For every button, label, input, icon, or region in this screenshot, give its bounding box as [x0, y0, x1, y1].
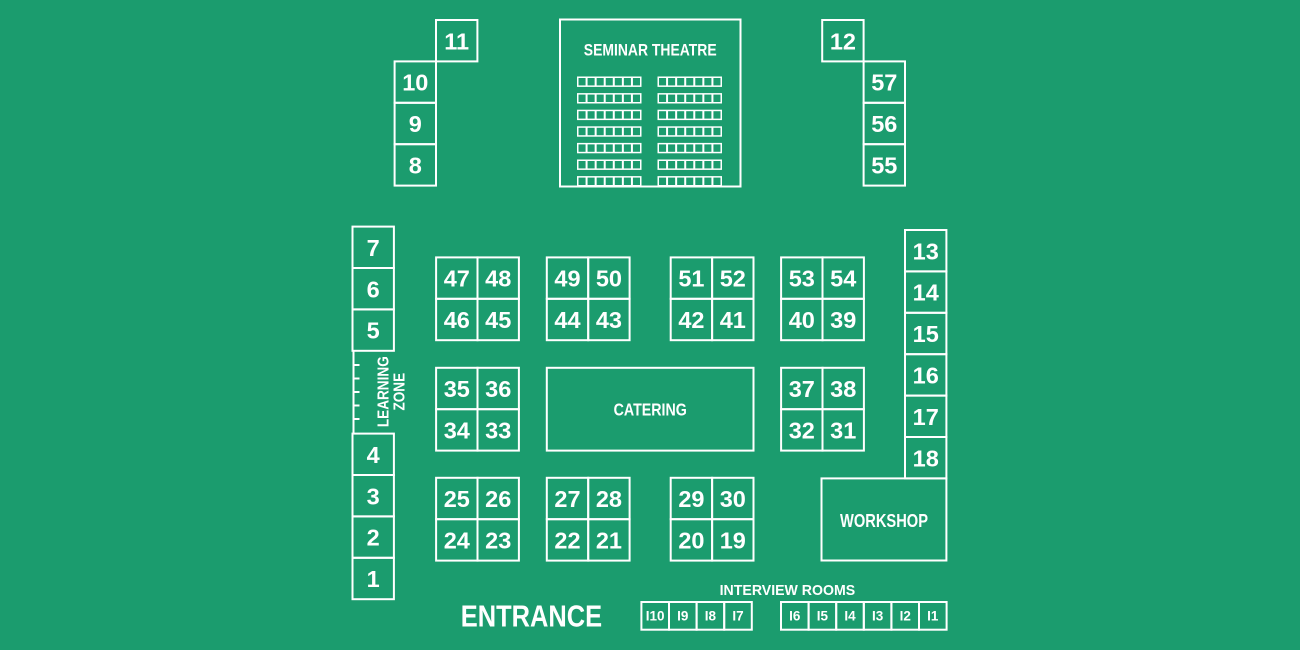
svg-text:32: 32	[789, 418, 815, 444]
svg-text:28: 28	[596, 486, 622, 512]
svg-text:I4: I4	[844, 609, 856, 624]
svg-text:I6: I6	[789, 609, 801, 624]
svg-text:26: 26	[485, 486, 511, 512]
svg-text:48: 48	[485, 266, 511, 292]
svg-text:57: 57	[871, 70, 897, 96]
svg-text:31: 31	[830, 418, 856, 444]
svg-text:INTERVIEW ROOMS: INTERVIEW ROOMS	[720, 582, 856, 598]
svg-text:49: 49	[554, 266, 580, 292]
svg-text:18: 18	[913, 445, 939, 471]
svg-text:50: 50	[596, 266, 622, 292]
svg-text:I3: I3	[872, 609, 884, 624]
svg-text:46: 46	[444, 307, 470, 333]
svg-text:1: 1	[367, 566, 380, 592]
svg-text:21: 21	[596, 528, 622, 554]
svg-text:11: 11	[444, 28, 469, 54]
svg-text:20: 20	[678, 528, 704, 554]
svg-text:33: 33	[485, 418, 511, 444]
svg-text:54: 54	[830, 266, 856, 292]
svg-text:9: 9	[409, 111, 422, 137]
svg-text:WORKSHOP: WORKSHOP	[840, 510, 928, 531]
svg-text:19: 19	[720, 528, 746, 554]
svg-text:52: 52	[720, 266, 746, 292]
svg-text:6: 6	[367, 276, 380, 302]
svg-text:39: 39	[830, 307, 856, 333]
svg-text:10: 10	[402, 70, 428, 96]
svg-text:SEMINAR THEATRE: SEMINAR THEATRE	[584, 41, 717, 60]
svg-text:42: 42	[678, 307, 704, 333]
svg-text:55: 55	[871, 153, 897, 179]
svg-text:I7: I7	[732, 609, 743, 624]
svg-text:I1: I1	[927, 609, 939, 624]
svg-text:ENTRANCE: ENTRANCE	[461, 599, 602, 633]
svg-text:22: 22	[554, 528, 580, 554]
svg-text:24: 24	[444, 528, 470, 554]
svg-text:I10: I10	[646, 609, 665, 624]
svg-text:43: 43	[596, 307, 622, 333]
svg-text:23: 23	[485, 528, 511, 554]
svg-text:25: 25	[444, 486, 470, 512]
svg-text:34: 34	[444, 418, 470, 444]
svg-text:29: 29	[678, 486, 704, 512]
svg-text:56: 56	[871, 111, 897, 137]
svg-text:14: 14	[913, 280, 939, 306]
svg-text:17: 17	[913, 404, 939, 430]
svg-text:13: 13	[913, 238, 939, 264]
svg-text:47: 47	[444, 266, 470, 292]
svg-text:ZONE: ZONE	[391, 373, 408, 411]
svg-text:40: 40	[789, 307, 815, 333]
svg-text:I5: I5	[817, 609, 829, 624]
svg-text:I2: I2	[900, 609, 911, 624]
svg-text:27: 27	[554, 486, 580, 512]
svg-text:3: 3	[367, 483, 380, 509]
svg-text:7: 7	[367, 235, 380, 261]
svg-text:15: 15	[913, 321, 939, 347]
svg-text:51: 51	[678, 266, 704, 292]
svg-text:44: 44	[554, 307, 580, 333]
svg-text:37: 37	[789, 376, 815, 402]
svg-text:36: 36	[485, 376, 511, 402]
svg-text:12: 12	[830, 28, 856, 54]
svg-text:2: 2	[367, 525, 380, 551]
svg-text:30: 30	[720, 486, 746, 512]
svg-text:I8: I8	[705, 609, 717, 624]
svg-text:16: 16	[913, 363, 939, 389]
svg-text:53: 53	[789, 266, 815, 292]
svg-text:5: 5	[367, 318, 380, 344]
svg-text:I9: I9	[677, 609, 688, 624]
svg-text:8: 8	[409, 153, 422, 179]
svg-text:LEARNING: LEARNING	[375, 356, 392, 427]
svg-text:45: 45	[485, 307, 511, 333]
svg-text:38: 38	[830, 376, 856, 402]
svg-text:4: 4	[367, 442, 380, 468]
svg-text:41: 41	[720, 307, 746, 333]
svg-text:CATERING: CATERING	[614, 401, 687, 420]
svg-text:35: 35	[444, 376, 470, 402]
